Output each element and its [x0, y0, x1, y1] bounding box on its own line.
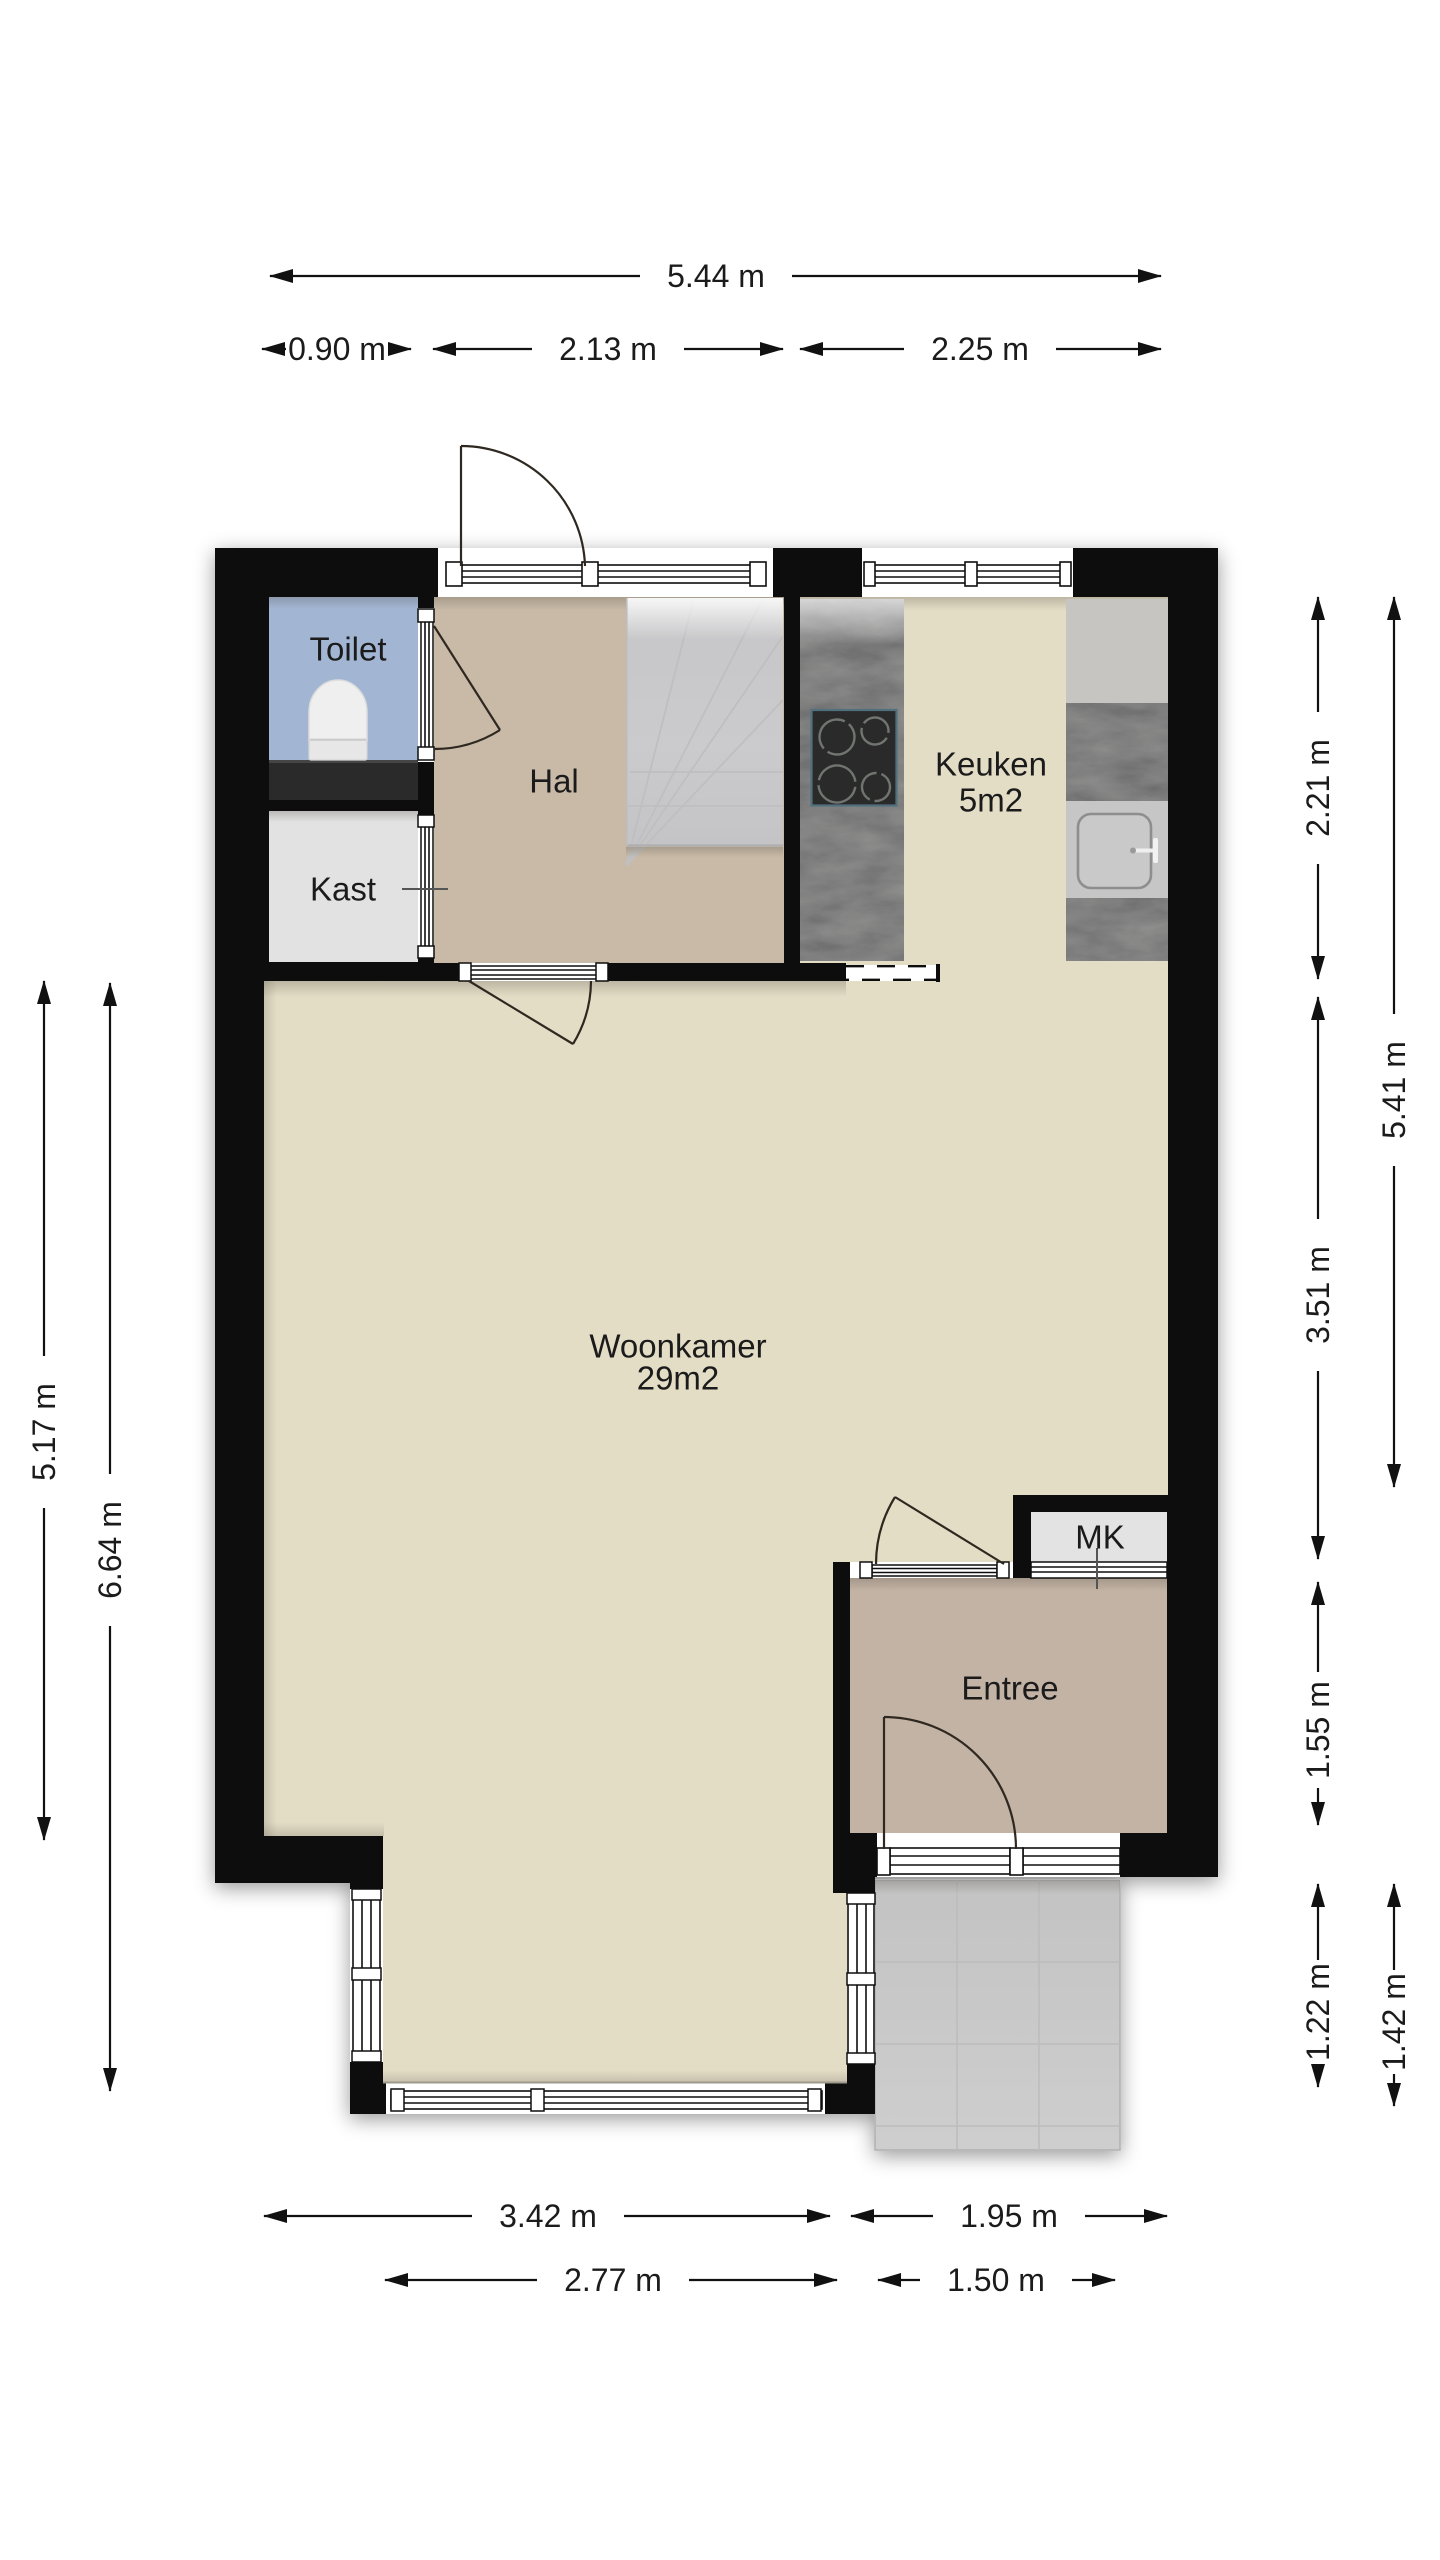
- svg-text:5m2: 5m2: [959, 782, 1023, 819]
- svg-text:2.77 m: 2.77 m: [564, 2262, 662, 2298]
- svg-text:3.42 m: 3.42 m: [499, 2198, 597, 2234]
- svg-text:2.13 m: 2.13 m: [559, 331, 657, 367]
- svg-text:5.17 m: 5.17 m: [26, 1383, 62, 1481]
- svg-text:Hal: Hal: [529, 763, 579, 800]
- svg-text:1.42 m: 1.42 m: [1376, 1973, 1412, 2071]
- svg-text:Kast: Kast: [310, 871, 376, 908]
- svg-text:0.90 m: 0.90 m: [288, 331, 386, 367]
- svg-text:1.55 m: 1.55 m: [1300, 1681, 1336, 1779]
- svg-text:1.22 m: 1.22 m: [1300, 1963, 1336, 2061]
- svg-text:2.21 m: 2.21 m: [1300, 739, 1336, 837]
- svg-text:5.41 m: 5.41 m: [1376, 1041, 1412, 1139]
- svg-text:1.95 m: 1.95 m: [960, 2198, 1058, 2234]
- svg-text:Toilet: Toilet: [309, 631, 386, 668]
- svg-text:1.50 m: 1.50 m: [947, 2262, 1045, 2298]
- svg-text:Keuken: Keuken: [935, 746, 1047, 783]
- svg-text:MK: MK: [1075, 1519, 1125, 1556]
- svg-text:3.51 m: 3.51 m: [1300, 1246, 1336, 1344]
- svg-text:Entree: Entree: [961, 1670, 1058, 1707]
- svg-text:29m2: 29m2: [637, 1360, 720, 1397]
- svg-text:6.64 m: 6.64 m: [92, 1501, 128, 1599]
- svg-text:5.44 m: 5.44 m: [667, 258, 765, 294]
- svg-text:2.25 m: 2.25 m: [931, 331, 1029, 367]
